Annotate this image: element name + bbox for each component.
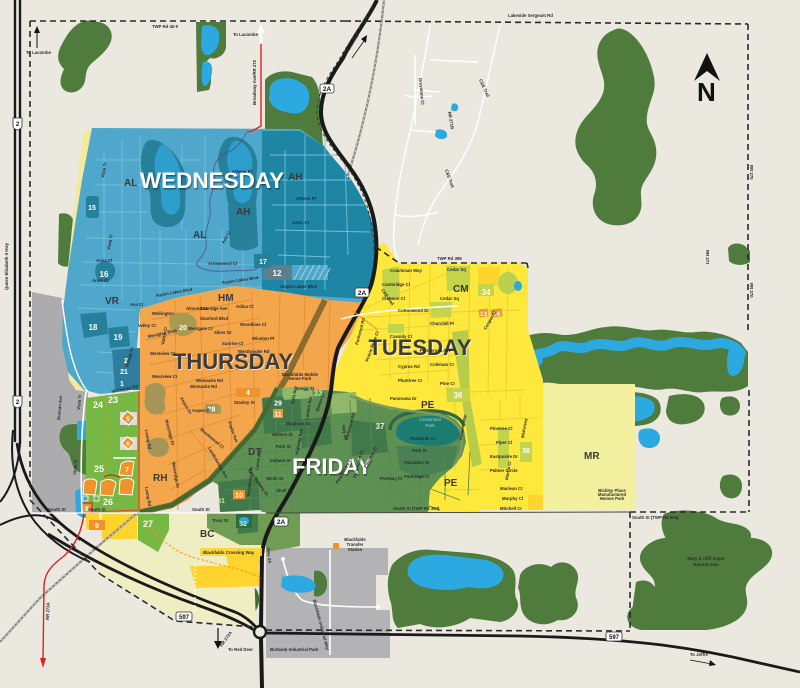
svg-text:Home Park: Home Park bbox=[289, 376, 312, 381]
svg-text:37: 37 bbox=[376, 422, 385, 431]
svg-text:South St (TWP Rd 394): South St (TWP Rd 394) bbox=[393, 506, 440, 511]
svg-text:25: 25 bbox=[94, 464, 104, 474]
svg-text:Mitchell Cr: Mitchell Cr bbox=[500, 506, 522, 511]
svg-text:Pine Cr: Pine Cr bbox=[440, 381, 455, 386]
svg-text:AH: AH bbox=[288, 172, 302, 183]
svg-text:Portway Cl: Portway Cl bbox=[380, 476, 402, 481]
svg-text:Cedar Sq: Cedar Sq bbox=[440, 296, 459, 301]
svg-text:Cassidy Cl: Cassidy Cl bbox=[390, 334, 412, 339]
svg-text:Westbrooke Rd: Westbrooke Rd bbox=[238, 349, 270, 354]
svg-text:To Lacombe: To Lacombe bbox=[26, 50, 52, 55]
svg-text:Crimson Cl: Crimson Cl bbox=[382, 296, 405, 301]
svg-text:19: 19 bbox=[114, 333, 123, 342]
svg-text:Wellington: Wellington bbox=[152, 311, 174, 316]
svg-text:32: 32 bbox=[239, 521, 247, 528]
svg-text:Indiana St: Indiana St bbox=[270, 458, 291, 463]
svg-text:South St: South St bbox=[192, 507, 210, 512]
svg-text:4: 4 bbox=[246, 390, 250, 397]
svg-text:Parkridge Cr: Parkridge Cr bbox=[404, 474, 430, 479]
svg-text:Gregg St: Gregg St bbox=[296, 386, 315, 391]
svg-text:Cambridge Cl: Cambridge Cl bbox=[382, 282, 410, 287]
svg-text:Sunrise Cl: Sunrise Cl bbox=[222, 341, 243, 346]
svg-text:To Red Deer: To Red Deer bbox=[228, 647, 253, 652]
svg-text:RR 271: RR 271 bbox=[705, 250, 710, 265]
svg-text:South St (TWP Rd 394): South St (TWP Rd 394) bbox=[632, 515, 679, 520]
svg-text:Westview Cr: Westview Cr bbox=[150, 351, 176, 356]
svg-text:Adina Cl: Adina Cl bbox=[236, 304, 253, 309]
svg-text:Churchill Pl: Churchill Pl bbox=[430, 321, 454, 326]
svg-text:27: 27 bbox=[143, 519, 153, 529]
svg-text:Park St: Park St bbox=[412, 448, 427, 453]
svg-text:N: N bbox=[697, 77, 716, 107]
svg-text:Womacks Rd: Womacks Rd bbox=[196, 378, 223, 383]
svg-text:South St: South St bbox=[88, 507, 106, 512]
svg-text:Blackfalds Crossing Way: Blackfalds Crossing Way bbox=[203, 550, 255, 555]
svg-text:24: 24 bbox=[93, 400, 103, 410]
svg-text:South St: South St bbox=[48, 507, 66, 512]
svg-text:Natural Area: Natural Area bbox=[693, 562, 719, 567]
svg-text:Woodbine Cl: Woodbine Cl bbox=[240, 322, 266, 327]
svg-text:RR 270: RR 270 bbox=[749, 283, 754, 298]
svg-text:RR 270: RR 270 bbox=[749, 165, 754, 180]
svg-text:RR 273A: RR 273A bbox=[45, 602, 51, 620]
svg-text:2A: 2A bbox=[358, 290, 367, 297]
svg-text:2A: 2A bbox=[277, 519, 286, 526]
svg-text:Athens Pl: Athens Pl bbox=[232, 169, 252, 174]
svg-text:THURSDAY: THURSDAY bbox=[173, 349, 294, 374]
svg-text:Womacks Rd: Womacks Rd bbox=[190, 384, 217, 389]
svg-text:Winston Pl: Winston Pl bbox=[252, 336, 274, 341]
svg-text:Centennial: Centennial bbox=[419, 417, 441, 422]
svg-text:Athens Pl: Athens Pl bbox=[296, 196, 316, 201]
svg-text:Anna Cl: Anna Cl bbox=[96, 258, 112, 263]
svg-text:Coleman Cr: Coleman Cr bbox=[430, 362, 454, 367]
svg-text:Burbank Industrial Park: Burbank Industrial Park bbox=[270, 647, 319, 652]
svg-text:TWP Rd 40-0: TWP Rd 40-0 bbox=[152, 24, 179, 29]
svg-text:To Joffre: To Joffre bbox=[690, 652, 709, 657]
svg-text:29: 29 bbox=[274, 401, 282, 408]
svg-text:MR: MR bbox=[584, 451, 600, 462]
svg-text:Homes Park: Homes Park bbox=[600, 496, 625, 501]
svg-text:Arrowwood Cl: Arrowwood Cl bbox=[208, 261, 237, 266]
svg-text:PE: PE bbox=[444, 478, 458, 489]
svg-text:TWP Rd 395: TWP Rd 395 bbox=[437, 256, 462, 261]
svg-text:21: 21 bbox=[120, 369, 128, 376]
svg-text:PE: PE bbox=[421, 400, 435, 411]
svg-text:Pondside Cr: Pondside Cr bbox=[410, 436, 436, 441]
svg-text:597: 597 bbox=[179, 615, 190, 621]
svg-text:Aspen Dr: Aspen Dr bbox=[192, 408, 211, 413]
svg-text:38: 38 bbox=[522, 448, 530, 455]
svg-text:2A: 2A bbox=[323, 86, 332, 93]
svg-text:597: 597 bbox=[609, 635, 620, 641]
svg-text:Ponderosa Ave: Ponderosa Ave bbox=[420, 348, 452, 353]
svg-text:AL: AL bbox=[124, 178, 137, 189]
svg-text:Ava Cr: Ava Cr bbox=[130, 302, 144, 307]
svg-text:WEDNESDAY: WEDNESDAY bbox=[140, 168, 284, 193]
svg-text:Park: Park bbox=[425, 423, 435, 428]
svg-text:Stanford Blvd: Stanford Blvd bbox=[200, 316, 229, 321]
svg-text:31: 31 bbox=[217, 498, 225, 505]
svg-text:VR: VR bbox=[105, 296, 120, 307]
svg-text:Palisades St: Palisades St bbox=[404, 460, 430, 465]
svg-text:Coachman Way: Coachman Way bbox=[390, 268, 422, 273]
svg-text:23: 23 bbox=[108, 395, 118, 405]
svg-text:Winlo St: Winlo St bbox=[266, 476, 284, 481]
svg-text:Plumtree Cr: Plumtree Cr bbox=[398, 378, 423, 383]
svg-text:Queen Elizabeth II Hwy: Queen Elizabeth II Hwy bbox=[4, 242, 9, 290]
svg-text:Maclean Cr: Maclean Cr bbox=[500, 486, 523, 491]
svg-text:Aspen Lakes Blvd: Aspen Lakes Blvd bbox=[280, 284, 317, 289]
svg-text:To Lacombe: To Lacombe bbox=[233, 32, 259, 37]
svg-text:AH: AH bbox=[236, 207, 250, 218]
svg-text:17: 17 bbox=[259, 259, 267, 266]
svg-text:Piper Cl: Piper Cl bbox=[496, 440, 512, 445]
svg-text:7: 7 bbox=[125, 467, 129, 474]
svg-text:Station: Station bbox=[348, 547, 363, 552]
svg-text:Cyprus Rd: Cyprus Rd bbox=[398, 364, 420, 369]
svg-text:Waghorn St: Waghorn St bbox=[286, 421, 311, 426]
svg-text:Westgate Cr: Westgate Cr bbox=[188, 326, 213, 331]
svg-text:Murphy Cl: Murphy Cl bbox=[502, 496, 523, 501]
svg-text:20: 20 bbox=[179, 325, 187, 332]
svg-text:Park St: Park St bbox=[276, 444, 291, 449]
svg-text:Silver Dr: Silver Dr bbox=[214, 330, 232, 335]
svg-text:Palmer Circle: Palmer Circle bbox=[490, 468, 518, 473]
svg-text:RH: RH bbox=[153, 473, 167, 484]
svg-text:12: 12 bbox=[273, 269, 282, 278]
svg-text:10: 10 bbox=[235, 493, 243, 500]
svg-text:Lakeside Sergeant Rd: Lakeside Sergeant Rd bbox=[508, 13, 553, 18]
svg-text:9: 9 bbox=[95, 523, 99, 530]
svg-text:26: 26 bbox=[103, 497, 113, 507]
svg-text:13: 13 bbox=[480, 311, 488, 318]
svg-text:Sunridge Ave: Sunridge Ave bbox=[200, 306, 228, 311]
svg-text:Trout St: Trout St bbox=[212, 518, 229, 523]
svg-text:Valley Cr: Valley Cr bbox=[138, 323, 156, 328]
svg-text:5: 5 bbox=[126, 416, 130, 423]
svg-text:HM: HM bbox=[218, 293, 234, 304]
svg-text:Aztec Cr: Aztec Cr bbox=[292, 220, 310, 225]
svg-text:18: 18 bbox=[89, 323, 98, 332]
svg-text:Arlen Cl: Arlen Cl bbox=[92, 278, 108, 283]
svg-text:Shull St: Shull St bbox=[276, 488, 293, 493]
svg-text:Westview Cr: Westview Cr bbox=[152, 374, 178, 379]
svg-text:Mary & Cliff Soper: Mary & Cliff Soper bbox=[687, 556, 725, 561]
svg-text:6: 6 bbox=[126, 441, 130, 448]
svg-text:Stanley St: Stanley St bbox=[234, 400, 255, 405]
svg-text:Eastpointe Dr: Eastpointe Dr bbox=[490, 454, 518, 459]
svg-text:Pinetree Cl: Pinetree Cl bbox=[490, 426, 512, 431]
svg-text:Cottonwood Dr: Cottonwood Dr bbox=[398, 308, 429, 313]
svg-text:CM: CM bbox=[453, 284, 469, 295]
svg-text:11: 11 bbox=[274, 412, 282, 419]
svg-text:Cedar Sq: Cedar Sq bbox=[447, 267, 466, 272]
svg-text:Broadway Ave/RR 272: Broadway Ave/RR 272 bbox=[252, 59, 257, 105]
svg-text:Willson St: Willson St bbox=[272, 432, 293, 437]
svg-text:36: 36 bbox=[454, 391, 463, 400]
svg-text:BC: BC bbox=[200, 529, 214, 540]
svg-text:Panorama Dr: Panorama Dr bbox=[390, 396, 417, 401]
svg-text:15: 15 bbox=[88, 205, 96, 212]
svg-text:34: 34 bbox=[482, 288, 491, 297]
svg-text:AL: AL bbox=[193, 230, 206, 241]
